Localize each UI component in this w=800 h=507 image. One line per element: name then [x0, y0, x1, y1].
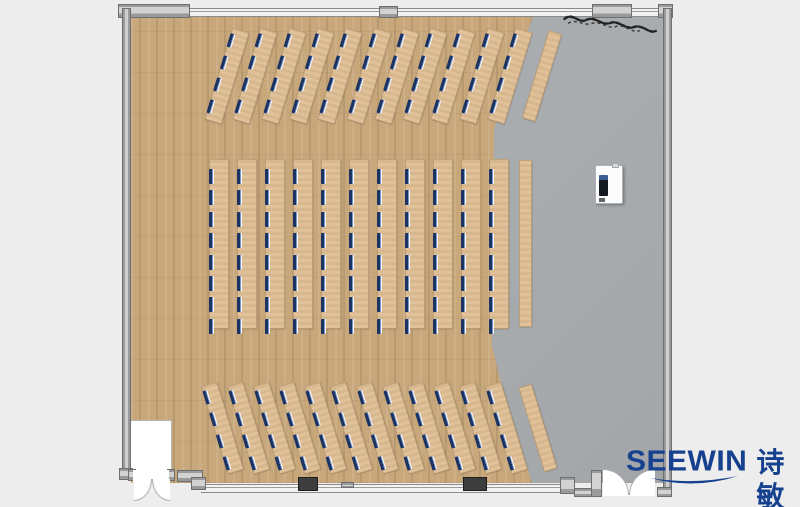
seat-monitor: [364, 412, 373, 427]
seat-monitor: [305, 55, 314, 70]
seat-monitor: [321, 276, 326, 291]
seat-monitor: [286, 412, 295, 427]
desk-middle-4: [293, 159, 313, 329]
seat-monitor: [489, 233, 494, 248]
seat-monitor: [390, 412, 399, 427]
seat-monitor: [460, 390, 469, 405]
seat-monitor: [377, 212, 382, 227]
seat-monitor: [355, 77, 364, 92]
seat-monitor: [276, 55, 285, 70]
seat-monitor: [461, 233, 466, 248]
seat-monitor: [405, 276, 410, 291]
seat-monitor: [377, 255, 382, 270]
seat-monitor: [433, 319, 438, 334]
seat-monitor: [293, 276, 298, 291]
seat-monitor: [242, 434, 251, 449]
desk-middle-2: [237, 159, 257, 329]
seat-monitor: [489, 169, 494, 184]
seat-monitor: [510, 33, 519, 48]
seat-monitor: [265, 233, 270, 248]
seat-monitor: [377, 233, 382, 248]
seat-monitor: [349, 255, 354, 270]
seat-monitor: [267, 434, 276, 449]
seat-monitor: [433, 169, 438, 184]
seat-monitor: [433, 99, 442, 114]
seat-monitor: [312, 412, 321, 427]
seat-monitor: [453, 33, 462, 48]
seat-monitor: [213, 77, 222, 92]
seat-monitor: [326, 77, 335, 92]
desk-middle-3: [265, 159, 285, 329]
seat-monitor: [349, 276, 354, 291]
seat-monitor: [293, 319, 298, 334]
seat-monitor: [404, 99, 413, 114]
side-table-middle: [519, 160, 532, 327]
seat-monitor: [263, 99, 272, 114]
seat-monitor: [377, 297, 382, 312]
seat-monitor: [411, 77, 420, 92]
seat-monitor: [340, 33, 349, 48]
seat-monitor: [209, 212, 214, 227]
seat-monitor: [209, 190, 214, 205]
seat-monitor: [283, 33, 292, 48]
seat-monitor: [227, 33, 236, 48]
seat-monitor: [403, 456, 412, 471]
seat-monitor: [377, 169, 382, 184]
podium-panel: [599, 198, 605, 202]
seat-monitor: [486, 390, 495, 405]
seat-monitor: [265, 276, 270, 291]
seat-monitor: [461, 99, 470, 114]
seat-monitor: [300, 456, 309, 471]
seat-monitor: [405, 233, 410, 248]
seat-monitor: [435, 390, 444, 405]
seat-monitor: [429, 456, 438, 471]
seat-monitor: [321, 297, 326, 312]
bottom-right-wall-post: [560, 477, 575, 494]
seat-monitor: [298, 77, 307, 92]
seat-monitor: [433, 190, 438, 205]
seat-monitor: [209, 233, 214, 248]
podium-handle: [612, 163, 619, 168]
seat-monitor: [489, 99, 498, 114]
bottom-right-corner-post: [657, 487, 672, 497]
seat-monitor: [489, 212, 494, 227]
seat-monitor: [425, 33, 434, 48]
seat-monitor: [209, 169, 214, 184]
seat-monitor: [481, 456, 490, 471]
seat-monitor: [321, 319, 326, 334]
seat-monitor: [321, 169, 326, 184]
seat-monitor: [506, 456, 515, 471]
desk-middle-1: [209, 159, 229, 329]
seat-monitor: [293, 190, 298, 205]
seat-monitor: [377, 319, 382, 334]
seat-monitor: [209, 255, 214, 270]
seat-monitor: [405, 212, 410, 227]
seat-monitor: [349, 319, 354, 334]
seat-monitor: [293, 212, 298, 227]
seat-monitor: [467, 412, 476, 427]
seat-monitor: [349, 169, 354, 184]
seat-monitor: [265, 169, 270, 184]
seat-monitor: [237, 297, 242, 312]
entrance-vestibule: [131, 420, 172, 472]
seat-monitor: [237, 233, 242, 248]
podium: [595, 165, 623, 204]
seat-monitor: [357, 390, 366, 405]
seat-monitor: [489, 297, 494, 312]
seat-monitor: [270, 77, 279, 92]
seat-monitor: [383, 390, 392, 405]
seat-monitor: [496, 77, 505, 92]
top-wall-segment-center: [379, 6, 398, 18]
seat-monitor: [418, 55, 427, 70]
seat-monitor: [461, 212, 466, 227]
seat-monitor: [293, 233, 298, 248]
seat-monitor: [209, 276, 214, 291]
seat-monitor: [348, 99, 357, 114]
seat-monitor: [293, 255, 298, 270]
seat-monitor: [493, 412, 502, 427]
desk-middle-9: [433, 159, 453, 329]
seat-monitor: [503, 55, 512, 70]
bottom-window-joint: [341, 482, 354, 488]
seat-monitor: [500, 434, 509, 449]
seat-monitor: [293, 169, 298, 184]
seat-monitor: [377, 276, 382, 291]
seat-monitor: [405, 319, 410, 334]
seat-monitor: [321, 212, 326, 227]
seat-monitor: [265, 190, 270, 205]
seat-monitor: [440, 77, 449, 92]
seat-monitor: [422, 434, 431, 449]
seat-monitor: [319, 434, 328, 449]
seat-monitor: [396, 434, 405, 449]
logo-text-seewin: SEEWIN: [626, 446, 747, 477]
seat-monitor: [345, 434, 354, 449]
seat-monitor: [241, 77, 250, 92]
seat-monitor: [405, 255, 410, 270]
seat-monitor: [461, 276, 466, 291]
seat-monitor: [489, 190, 494, 205]
right-wall: [663, 8, 672, 497]
seat-monitor: [265, 297, 270, 312]
seat-monitor: [377, 190, 382, 205]
seat-monitor: [461, 297, 466, 312]
brand-logo: SEEWIN 诗敏: [626, 446, 800, 486]
seat-monitor: [237, 319, 242, 334]
seat-monitor: [396, 33, 405, 48]
seat-monitor: [248, 55, 257, 70]
seat-monitor: [433, 255, 438, 270]
seat-monitor: [455, 456, 464, 471]
seat-monitor: [261, 412, 270, 427]
desk-middle-11: [489, 159, 509, 329]
seat-monitor: [441, 412, 450, 427]
desk-middle-8: [405, 159, 425, 329]
seat-monitor: [361, 55, 370, 70]
bottom-left-wall-post: [191, 477, 206, 490]
seat-monitor: [489, 319, 494, 334]
seat-monitor: [405, 297, 410, 312]
seat-monitor: [409, 390, 418, 405]
structural-column-2: [463, 477, 487, 491]
seat-monitor: [223, 456, 232, 471]
seat-monitor: [237, 255, 242, 270]
seat-monitor: [349, 212, 354, 227]
right-door-post: [591, 470, 602, 497]
structural-column-1: [298, 477, 318, 491]
seat-monitor: [265, 255, 270, 270]
bottom-window-wall: [201, 484, 562, 493]
seat-monitor: [461, 255, 466, 270]
seat-monitor: [235, 99, 244, 114]
desk-middle-7: [377, 159, 397, 329]
seat-monitor: [377, 456, 386, 471]
seat-monitor: [202, 390, 211, 405]
seat-monitor: [311, 33, 320, 48]
seat-monitor: [209, 297, 214, 312]
podium-screen: [599, 175, 608, 196]
seat-monitor: [320, 99, 329, 114]
seat-monitor: [265, 319, 270, 334]
seat-monitor: [293, 434, 302, 449]
seat-monitor: [461, 169, 466, 184]
seat-monitor: [433, 276, 438, 291]
seat-monitor: [265, 212, 270, 227]
seat-monitor: [321, 233, 326, 248]
seat-monitor: [209, 319, 214, 334]
seat-monitor: [255, 33, 264, 48]
floor-plan-scene: SEEWIN 诗敏: [0, 0, 800, 507]
seat-monitor: [349, 297, 354, 312]
seat-monitor: [321, 190, 326, 205]
seat-monitor: [433, 233, 438, 248]
desk-layer: [0, 0, 800, 507]
seat-monitor: [235, 412, 244, 427]
logo-text-chinese: 诗敏: [756, 446, 800, 507]
seat-monitor: [280, 390, 289, 405]
seat-monitor: [383, 77, 392, 92]
seat-monitor: [331, 390, 340, 405]
seat-monitor: [461, 190, 466, 205]
seat-monitor: [461, 319, 466, 334]
seat-monitor: [254, 390, 263, 405]
seat-monitor: [274, 456, 283, 471]
seat-monitor: [390, 55, 399, 70]
seat-monitor: [349, 190, 354, 205]
seat-monitor: [237, 212, 242, 227]
seat-monitor: [237, 276, 242, 291]
desk-middle-6: [349, 159, 369, 329]
seat-monitor: [468, 77, 477, 92]
seat-monitor: [448, 434, 457, 449]
seat-monitor: [306, 390, 315, 405]
seat-monitor: [338, 412, 347, 427]
seat-monitor: [371, 434, 380, 449]
seat-monitor: [293, 297, 298, 312]
seat-monitor: [326, 456, 335, 471]
seat-monitor: [415, 412, 424, 427]
seat-monitor: [216, 434, 225, 449]
left-wall: [122, 8, 131, 478]
seat-monitor: [237, 190, 242, 205]
seat-monitor: [237, 169, 242, 184]
seat-monitor: [206, 99, 215, 114]
seat-monitor: [475, 55, 484, 70]
seat-monitor: [481, 33, 490, 48]
seat-monitor: [489, 255, 494, 270]
seat-monitor: [333, 55, 342, 70]
seat-monitor: [474, 434, 483, 449]
seat-monitor: [405, 190, 410, 205]
seat-monitor: [321, 255, 326, 270]
seat-monitor: [209, 412, 218, 427]
seat-monitor: [489, 276, 494, 291]
seat-monitor: [349, 233, 354, 248]
seat-monitor: [433, 297, 438, 312]
seat-monitor: [248, 456, 257, 471]
desk-middle-10: [461, 159, 481, 329]
seat-monitor: [352, 456, 361, 471]
seat-monitor: [368, 33, 377, 48]
seat-monitor: [228, 390, 237, 405]
seat-monitor: [446, 55, 455, 70]
logo-swoosh-icon: [648, 475, 740, 488]
seat-monitor: [376, 99, 385, 114]
seat-monitor: [433, 212, 438, 227]
seat-monitor: [405, 169, 410, 184]
seat-monitor: [291, 99, 300, 114]
desk-middle-5: [321, 159, 341, 329]
seat-monitor: [220, 55, 229, 70]
